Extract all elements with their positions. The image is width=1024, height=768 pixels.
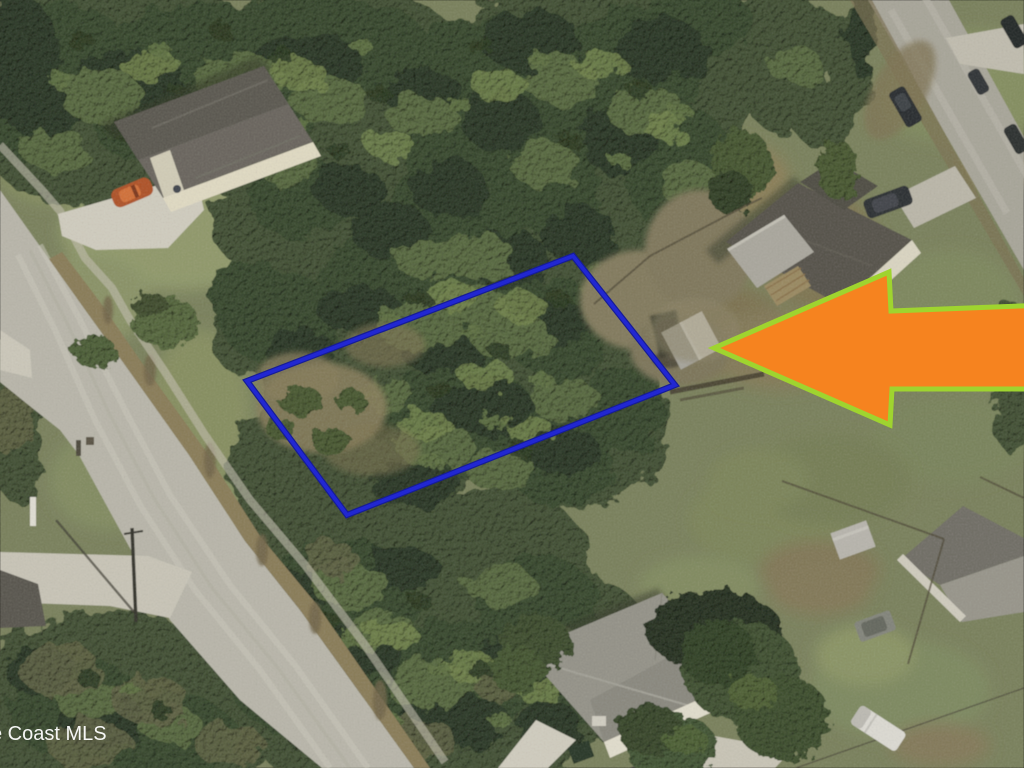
svg-text:e Coast MLS: e Coast MLS [0, 723, 107, 745]
